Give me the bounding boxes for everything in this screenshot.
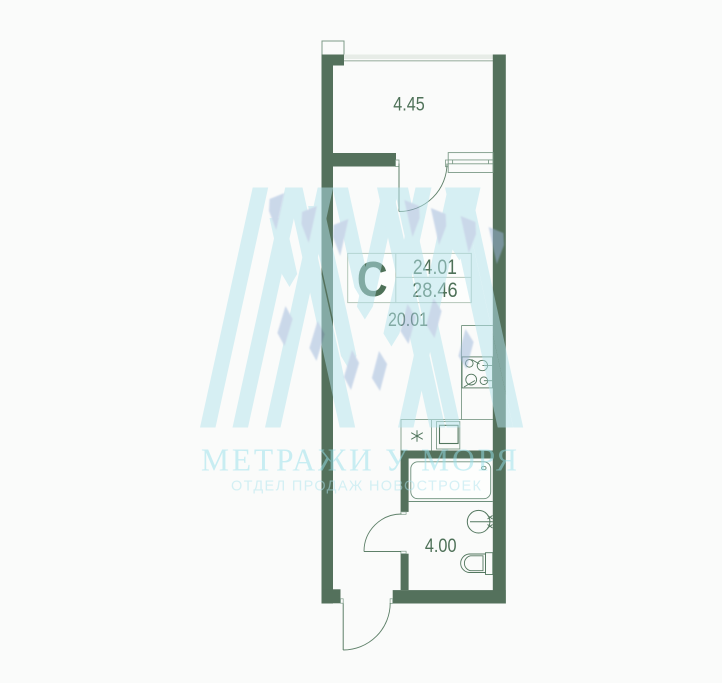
svg-text:ОТДЕЛ ПРОДАЖ НОВОСТРОЕК: ОТДЕЛ ПРОДАЖ НОВОСТРОЕК	[231, 479, 482, 495]
svg-text:4.45: 4.45	[393, 95, 425, 116]
svg-text:4.00: 4.00	[425, 536, 457, 557]
svg-text:МЕТРАЖИ У МОРЯ: МЕТРАЖИ У МОРЯ	[201, 443, 517, 478]
